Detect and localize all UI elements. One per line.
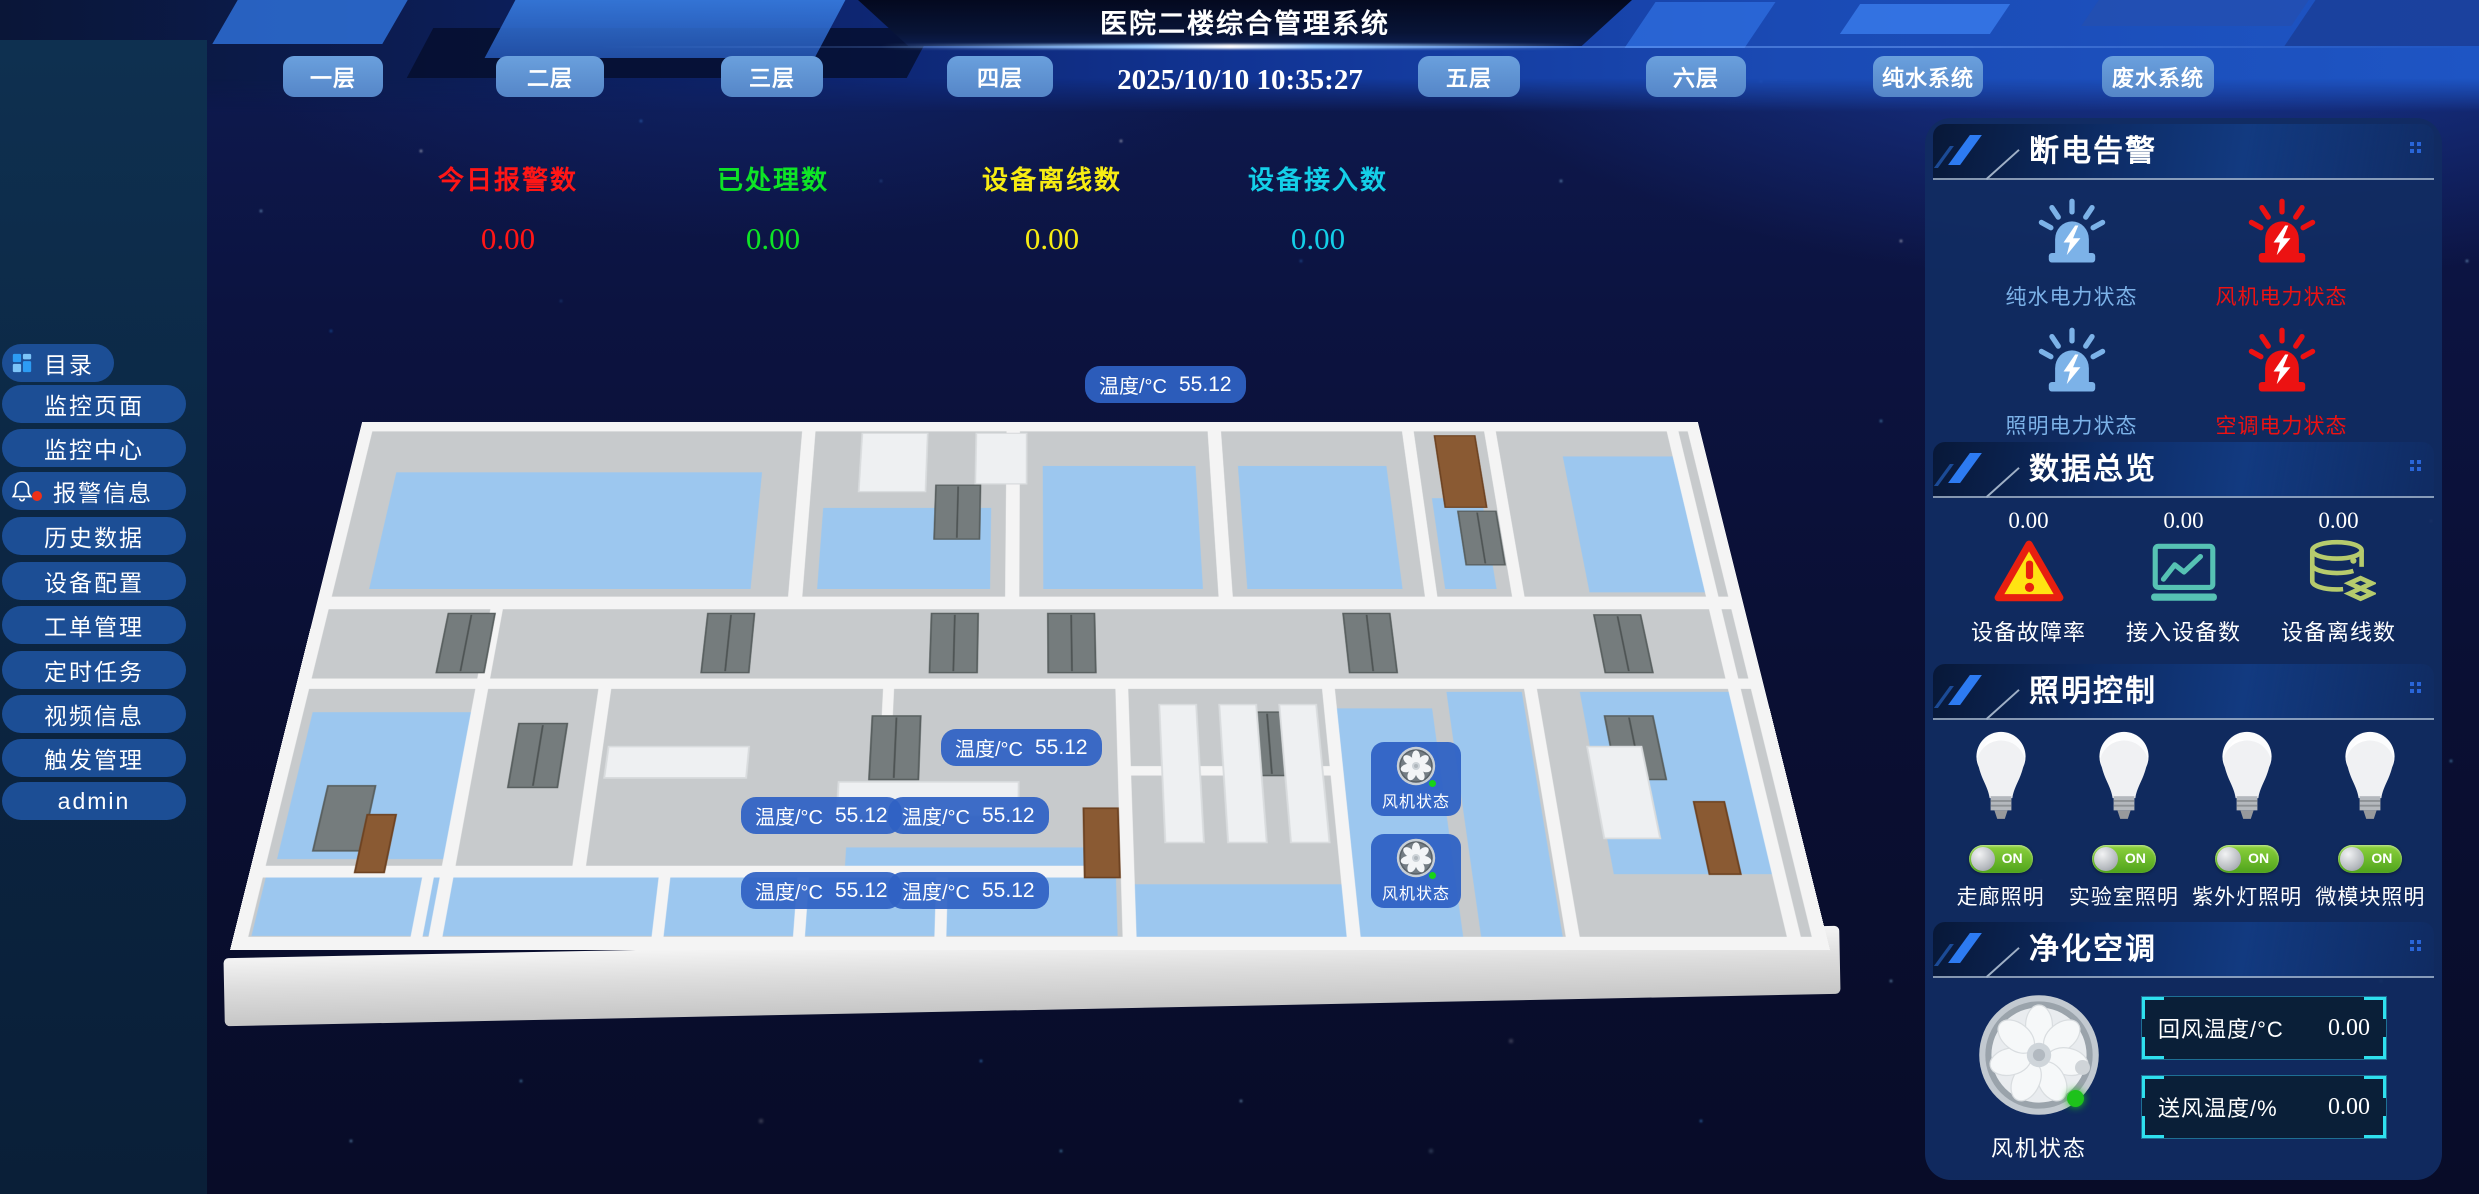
page-title: 医院二楼综合管理系统	[858, 0, 1632, 48]
toggle-knob	[1971, 847, 1995, 871]
lighting-grid: ON 走廊照明 ON	[1925, 720, 2442, 911]
power-status-label: 纯水电力状态	[1967, 281, 2177, 311]
toggle-state-label: ON	[2248, 850, 2269, 866]
overview-value: 0.00	[2261, 508, 2416, 534]
fan-running-dot	[1429, 872, 1436, 879]
power-status-lighting: 照明电力状态	[1967, 325, 2177, 440]
section-header-hvac: 净化空调	[1933, 922, 2434, 978]
toggle-state-label: ON	[2371, 850, 2392, 866]
hvac-content: 风机状态 回风温度/°C 0.00 送风温度/% 0.00	[1925, 978, 2442, 1163]
header-deco-slab	[2081, 0, 2309, 26]
light-toggle[interactable]: ON	[2338, 845, 2402, 873]
alarm-dot-indicator	[32, 491, 42, 501]
temperature-chip-label: 温度/°C	[955, 733, 1023, 762]
datetime-display: 2025/10/10 10:35:27	[1110, 64, 1370, 97]
fan-status-badge[interactable]: 风机状态	[1371, 834, 1461, 908]
sidebar-item-label: 定时任务	[44, 653, 144, 687]
section-title: 净化空调	[2029, 933, 2157, 966]
header-deco-slab	[485, 0, 846, 58]
power-status-label: 照明电力状态	[1967, 410, 2177, 440]
overview-label: 接入设备数	[2106, 615, 2261, 647]
toggle-knob	[2217, 847, 2241, 871]
sidebar-item-device-config[interactable]: 设备配置	[2, 562, 186, 600]
section-title: 照明控制	[2029, 675, 2157, 708]
sidebar-item-monitor-center[interactable]: 监控中心	[2, 429, 186, 467]
alarm-beacon-icon	[2244, 325, 2320, 401]
hvac-fan-status[interactable]: 风机状态	[1963, 994, 2115, 1163]
overview-offline-devices: 0.00 设备离线数	[2261, 508, 2416, 647]
power-alarm-grid: 纯水电力状态 风机电力状态	[1911, 196, 2442, 440]
sidebar-item-label: 监控页面	[44, 387, 144, 421]
overview-value: 0.00	[2106, 508, 2261, 534]
stat-label: 今日报警数	[398, 160, 618, 197]
light-corridor: ON 走廊照明	[1939, 730, 2062, 911]
fan-status-badge[interactable]: 风机状态	[1371, 742, 1461, 816]
tab-floor-1[interactable]: 一层	[283, 56, 383, 97]
sidebar-item-video-info[interactable]: 视频信息	[2, 695, 186, 733]
light-uv: ON 紫外灯照明	[2186, 730, 2309, 911]
fan-running-dot	[1429, 780, 1436, 787]
monitor-chart-icon	[2147, 536, 2221, 610]
bell-icon	[10, 479, 34, 503]
toggle-state-label: ON	[2125, 850, 2146, 866]
reading-label: 送风温度/%	[2158, 1091, 2278, 1123]
tab-floor-2[interactable]: 二层	[496, 56, 604, 97]
power-alarm-section: 断电告警 纯水电力状态	[1925, 124, 2442, 440]
light-bulb-icon	[2341, 730, 2399, 834]
temperature-chip-value: 55.12	[982, 804, 1035, 828]
overview-connected-devices: 0.00 接入设备数	[2106, 508, 2261, 647]
sidebar-item-label: admin	[58, 788, 131, 815]
stat-label: 已处理数	[663, 160, 883, 197]
header-dots-icon	[2410, 682, 2414, 686]
sidebar-item-label: 历史数据	[44, 519, 144, 553]
sidebar-item-scheduled-tasks[interactable]: 定时任务	[2, 651, 186, 689]
overview-value: 0.00	[1951, 508, 2106, 534]
power-status-label: 风机电力状态	[2177, 281, 2387, 311]
sidebar-item-label: 设备配置	[44, 564, 144, 598]
power-status-label: 空调电力状态	[2177, 410, 2387, 440]
temperature-chip-label: 温度/°C	[902, 801, 970, 830]
light-toggle[interactable]: ON	[2092, 845, 2156, 873]
light-label: 实验室照明	[2062, 881, 2185, 911]
reading-return-air-temp: 回风温度/°C 0.00	[2141, 996, 2387, 1060]
data-overview-section: 数据总览 0.00 设备故障率 0.00	[1925, 442, 2442, 647]
header-dots-icon	[2410, 940, 2414, 944]
temperature-chip-label: 温度/°C	[902, 876, 970, 905]
hvac-readings: 回风温度/°C 0.00 送风温度/% 0.00	[2141, 996, 2387, 1163]
light-toggle[interactable]: ON	[2215, 845, 2279, 873]
sidebar-item-label: 视频信息	[44, 697, 144, 731]
sidebar-item-alarm-info[interactable]: 报警信息	[2, 472, 186, 510]
power-status-hvac: 空调电力状态	[2177, 325, 2387, 440]
light-label: 走廊照明	[1939, 881, 2062, 911]
reading-value: 0.00	[2328, 1015, 2370, 1042]
tab-pure-water-system[interactable]: 纯水系统	[1873, 56, 1983, 97]
tab-floor-5[interactable]: 五层	[1418, 56, 1520, 97]
temperature-chip: 温度/°C 55.12	[941, 729, 1102, 766]
sidebar-item-label: 报警信息	[53, 474, 153, 508]
fan-badge-label: 风机状态	[1371, 788, 1461, 812]
overview-fault-rate: 0.00 设备故障率	[1951, 508, 2106, 647]
warning-triangle-icon	[1992, 536, 2066, 610]
dashboard-root: 医院二楼综合管理系统 一层 二层 三层 四层 五层 六层 纯水系统 废水系统 2…	[0, 0, 2479, 1194]
temperature-chip-value: 55.12	[1035, 736, 1088, 760]
tab-waste-water-system[interactable]: 废水系统	[2102, 56, 2214, 97]
dashboard-grid-icon	[11, 352, 33, 374]
light-bulb-icon	[2218, 730, 2276, 834]
header-glow-beam	[880, 44, 1580, 49]
light-label: 微模块照明	[2309, 881, 2432, 911]
header-deco-slab	[1840, 4, 2010, 34]
light-laboratory: ON 实验室照明	[2062, 730, 2185, 911]
light-label: 紫外灯照明	[2186, 881, 2309, 911]
header-deco-slab	[212, 0, 407, 44]
temperature-chip-value: 55.12	[982, 879, 1035, 903]
header-deco-slab	[1624, 2, 1775, 48]
temperature-chip-value: 55.12	[1179, 373, 1232, 397]
toggle-state-label: ON	[2002, 850, 2023, 866]
light-bulb-icon	[2095, 730, 2153, 834]
alarm-beacon-icon	[2244, 196, 2320, 272]
alarm-beacon-icon	[2034, 325, 2110, 401]
sidebar-item-label: 工单管理	[44, 608, 144, 642]
temperature-chip-value: 55.12	[835, 879, 888, 903]
power-status-pure-water: 纯水电力状态	[1967, 196, 2177, 311]
light-toggle[interactable]: ON	[1969, 845, 2033, 873]
hvac-fan-label: 风机状态	[1963, 1131, 2115, 1163]
hvac-section: 净化空调 风机状态 回风温度/°C	[1925, 922, 2442, 1163]
title-plate: 医院二楼综合管理系统	[858, 0, 1632, 46]
sidebar-item-admin[interactable]: admin	[2, 782, 186, 820]
tab-floor-6[interactable]: 六层	[1646, 56, 1746, 97]
temperature-chip: 温度/°C 55.12	[888, 797, 1049, 834]
reading-label: 回风温度/°C	[2158, 1012, 2284, 1044]
fan-gray-dot	[2075, 1060, 2090, 1075]
tab-floor-4[interactable]: 四层	[947, 56, 1053, 97]
floorplan-svg	[230, 422, 1830, 950]
light-bulb-icon	[1972, 730, 2030, 834]
overview-label: 设备故障率	[1951, 615, 2106, 647]
floorplan-tilted-model	[230, 422, 1830, 950]
fan-badge-label: 风机状态	[1371, 880, 1461, 904]
temperature-chip: 温度/°C 55.12	[1085, 366, 1246, 403]
fan-running-dot	[2067, 1090, 2084, 1107]
header-dots-icon	[2410, 142, 2414, 146]
sidebar-item-label: 目录	[44, 346, 94, 380]
temperature-chip: 温度/°C 55.12	[741, 797, 902, 834]
database-icon	[2302, 536, 2376, 610]
sidebar-item-work-orders[interactable]: 工单管理	[2, 606, 186, 644]
section-title: 断电告警	[2029, 135, 2157, 168]
sidebar-item-trigger-management[interactable]: 触发管理	[2, 739, 186, 777]
section-header-power-alarm: 断电告警	[1933, 124, 2434, 180]
overview-label: 设备离线数	[2261, 615, 2416, 647]
header-deco-slab	[2284, 0, 2479, 46]
stat-label: 设备离线数	[942, 160, 1162, 197]
temperature-chip: 温度/°C 55.12	[888, 872, 1049, 909]
temperature-chip-label: 温度/°C	[1099, 370, 1167, 399]
reading-value: 0.00	[2328, 1094, 2370, 1121]
sidebar-item-label: 监控中心	[44, 431, 144, 465]
power-status-fan: 风机电力状态	[2177, 196, 2387, 311]
header-dots-icon	[2410, 460, 2414, 464]
light-micro-module: ON 微模块照明	[2309, 730, 2432, 911]
reading-supply-air-temp: 送风温度/% 0.00	[2141, 1075, 2387, 1139]
temperature-chip: 温度/°C 55.12	[741, 872, 902, 909]
sidebar-item-directory[interactable]: 目录	[2, 344, 114, 382]
section-header-lighting: 照明控制	[1933, 664, 2434, 720]
alarm-beacon-icon	[2034, 196, 2110, 272]
section-header-data-overview: 数据总览	[1933, 442, 2434, 498]
temperature-chip-label: 温度/°C	[755, 801, 823, 830]
stat-label: 设备接入数	[1208, 160, 1428, 197]
sidebar-item-history-data[interactable]: 历史数据	[2, 517, 186, 555]
lighting-control-section: 照明控制 ON 走廊照	[1925, 664, 2442, 911]
sidebar-item-monitor-page[interactable]: 监控页面	[2, 385, 186, 423]
toggle-knob	[2094, 847, 2118, 871]
sidebar-item-label: 触发管理	[44, 741, 144, 775]
section-title: 数据总览	[2029, 453, 2157, 486]
right-panel: 断电告警 纯水电力状态	[1925, 118, 2442, 1180]
data-overview-grid: 0.00 设备故障率 0.00 接入设备数	[1925, 498, 2442, 647]
tab-floor-3[interactable]: 三层	[721, 56, 823, 97]
floorplan-3d-view[interactable]	[230, 234, 1830, 950]
temperature-chip-value: 55.12	[835, 804, 888, 828]
toggle-knob	[2340, 847, 2364, 871]
temperature-chip-label: 温度/°C	[755, 876, 823, 905]
